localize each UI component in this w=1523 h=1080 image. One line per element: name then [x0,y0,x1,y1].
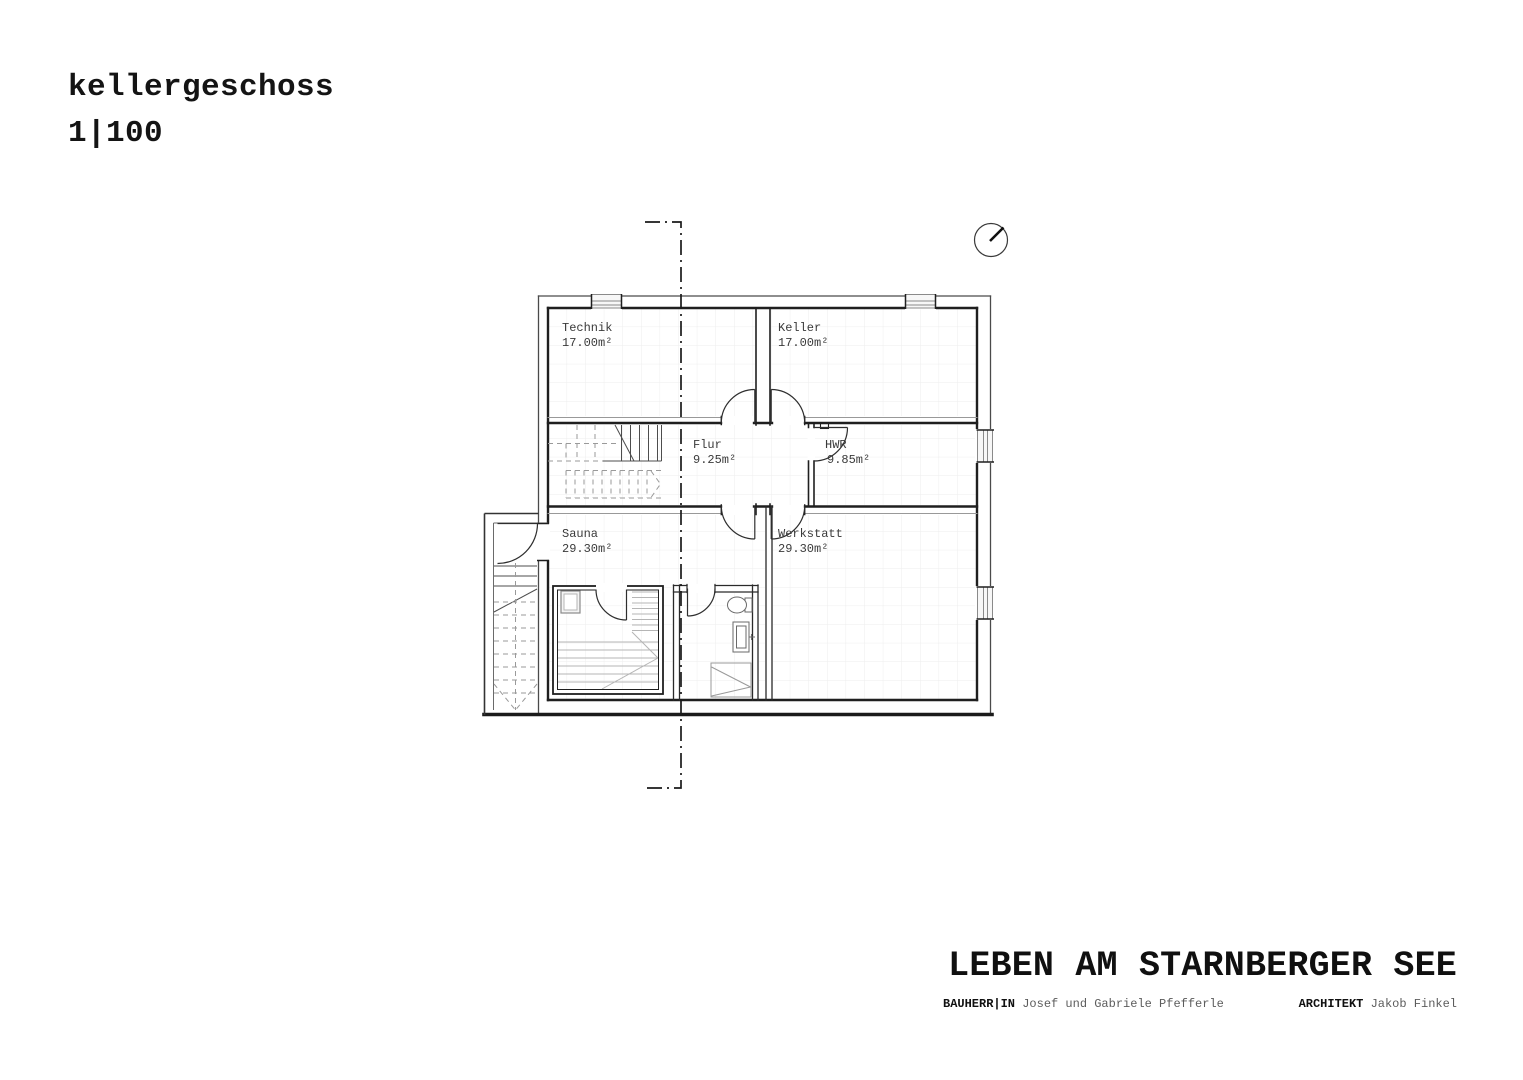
architect-credit: ARCHITEKT Jakob Finkel [1299,997,1457,1011]
project-title: LEBEN AM STARNBERGER SEE [948,946,1457,986]
room-area: 9.85m² [827,453,870,467]
room-name: Keller [778,321,821,335]
room-label-technik: Technik 17.00m² [562,321,612,350]
room-name: Technik [562,321,612,335]
client-name: Josef und Gabriele Pfefferle [1022,997,1224,1011]
architect-name: Jakob Finkel [1371,997,1457,1011]
window-right-werkstatt [975,586,994,620]
room-area: 29.30m² [778,542,828,556]
room-label-keller: Keller 17.00m² [778,321,828,350]
architect-label: ARCHITEKT [1299,997,1364,1011]
client-credit: BAUHERR|IN Josef und Gabriele Pfefferle [943,997,1224,1011]
door-exterior-stair [498,524,538,564]
window-top-keller [905,293,936,310]
toilet-symbol [728,597,753,613]
north-needle-icon [990,228,1004,242]
room-area: 17.00m² [778,336,828,350]
room-name: Werkstatt [778,527,843,541]
room-name: Sauna [562,527,598,541]
room-area: 9.25m² [693,453,736,467]
title-block-credits: BAUHERR|IN Josef und Gabriele Pfefferle … [943,997,1457,1011]
room-name: HWR [825,438,847,452]
window-right-hwr [975,429,994,463]
room-name: Flur [693,438,722,452]
room-area: 17.00m² [562,336,612,350]
room-area: 29.30m² [562,542,612,556]
north-indicator [975,224,1008,257]
client-label: BAUHERR|IN [943,997,1015,1011]
sauna-heater-symbol [561,591,580,613]
floor-plan: Technik 17.00m² Keller 17.00m² Flur 9.25… [0,0,1523,1080]
floor-plan-page: kellergeschoss 1|100 [0,0,1523,1080]
exterior-staircase [485,514,551,716]
window-top-technik [591,293,622,310]
